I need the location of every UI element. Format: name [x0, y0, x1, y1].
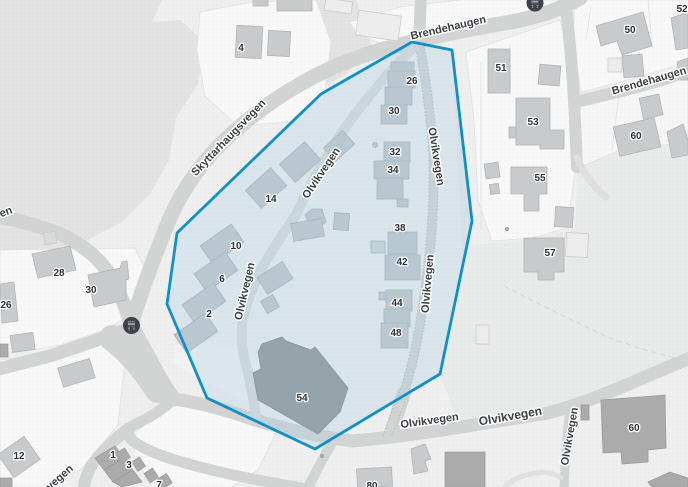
svg-text:32: 32: [389, 147, 401, 158]
svg-text:30: 30: [388, 106, 400, 117]
svg-text:10: 10: [230, 241, 242, 252]
svg-text:60: 60: [628, 423, 640, 434]
svg-text:1: 1: [110, 450, 116, 461]
svg-text:60: 60: [630, 131, 642, 142]
svg-text:26: 26: [0, 300, 12, 311]
svg-text:3: 3: [126, 460, 132, 471]
svg-text:54: 54: [296, 393, 308, 404]
svg-text:80: 80: [366, 481, 378, 487]
svg-text:14: 14: [265, 194, 277, 205]
svg-text:28: 28: [53, 268, 65, 279]
svg-text:12: 12: [13, 451, 25, 462]
svg-text:52: 52: [676, 4, 688, 15]
svg-text:6: 6: [219, 274, 225, 285]
svg-text:53: 53: [527, 117, 539, 128]
svg-text:51: 51: [495, 63, 507, 74]
svg-text:2: 2: [206, 309, 212, 320]
svg-text:55: 55: [534, 173, 546, 184]
svg-text:44: 44: [391, 298, 403, 309]
svg-text:4: 4: [238, 43, 244, 54]
svg-text:34: 34: [387, 165, 399, 176]
svg-text:38: 38: [394, 223, 406, 234]
svg-text:7: 7: [156, 480, 162, 487]
svg-text:30: 30: [85, 285, 97, 296]
svg-text:50: 50: [624, 25, 636, 36]
svg-text:57: 57: [544, 248, 556, 259]
svg-text:48: 48: [390, 328, 402, 339]
svg-text:42: 42: [396, 257, 408, 268]
svg-text:26: 26: [406, 76, 418, 87]
